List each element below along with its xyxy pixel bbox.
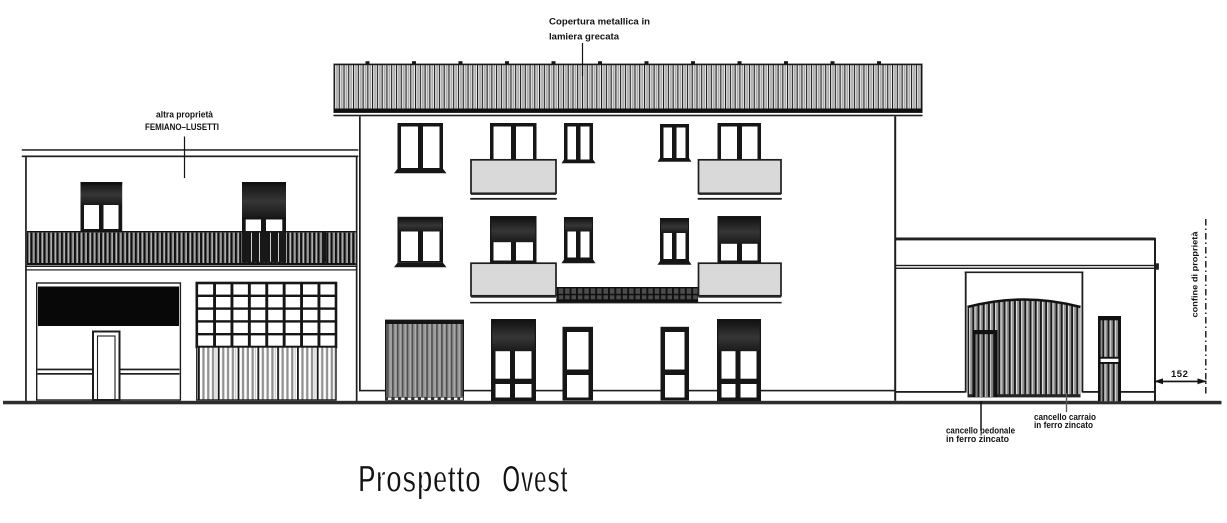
svg-text:in ferro zincato: in ferro zincato xyxy=(946,434,1009,444)
svg-text:confine di proprietà: confine di proprietà xyxy=(1190,231,1200,317)
svg-text:152: 152 xyxy=(1171,369,1188,380)
svg-text:altra proprietà: altra proprietà xyxy=(156,109,214,119)
svg-text:Ovest: Ovest xyxy=(502,458,568,501)
svg-text:lamiera grecata: lamiera grecata xyxy=(549,32,620,42)
svg-text:FEMIANO–LUSETTI: FEMIANO–LUSETTI xyxy=(145,122,219,132)
svg-text:Prospetto: Prospetto xyxy=(358,458,481,501)
svg-text:Copertura metallica in: Copertura metallica in xyxy=(549,17,650,27)
svg-text:in ferro zincato: in ferro zincato xyxy=(1034,420,1093,430)
